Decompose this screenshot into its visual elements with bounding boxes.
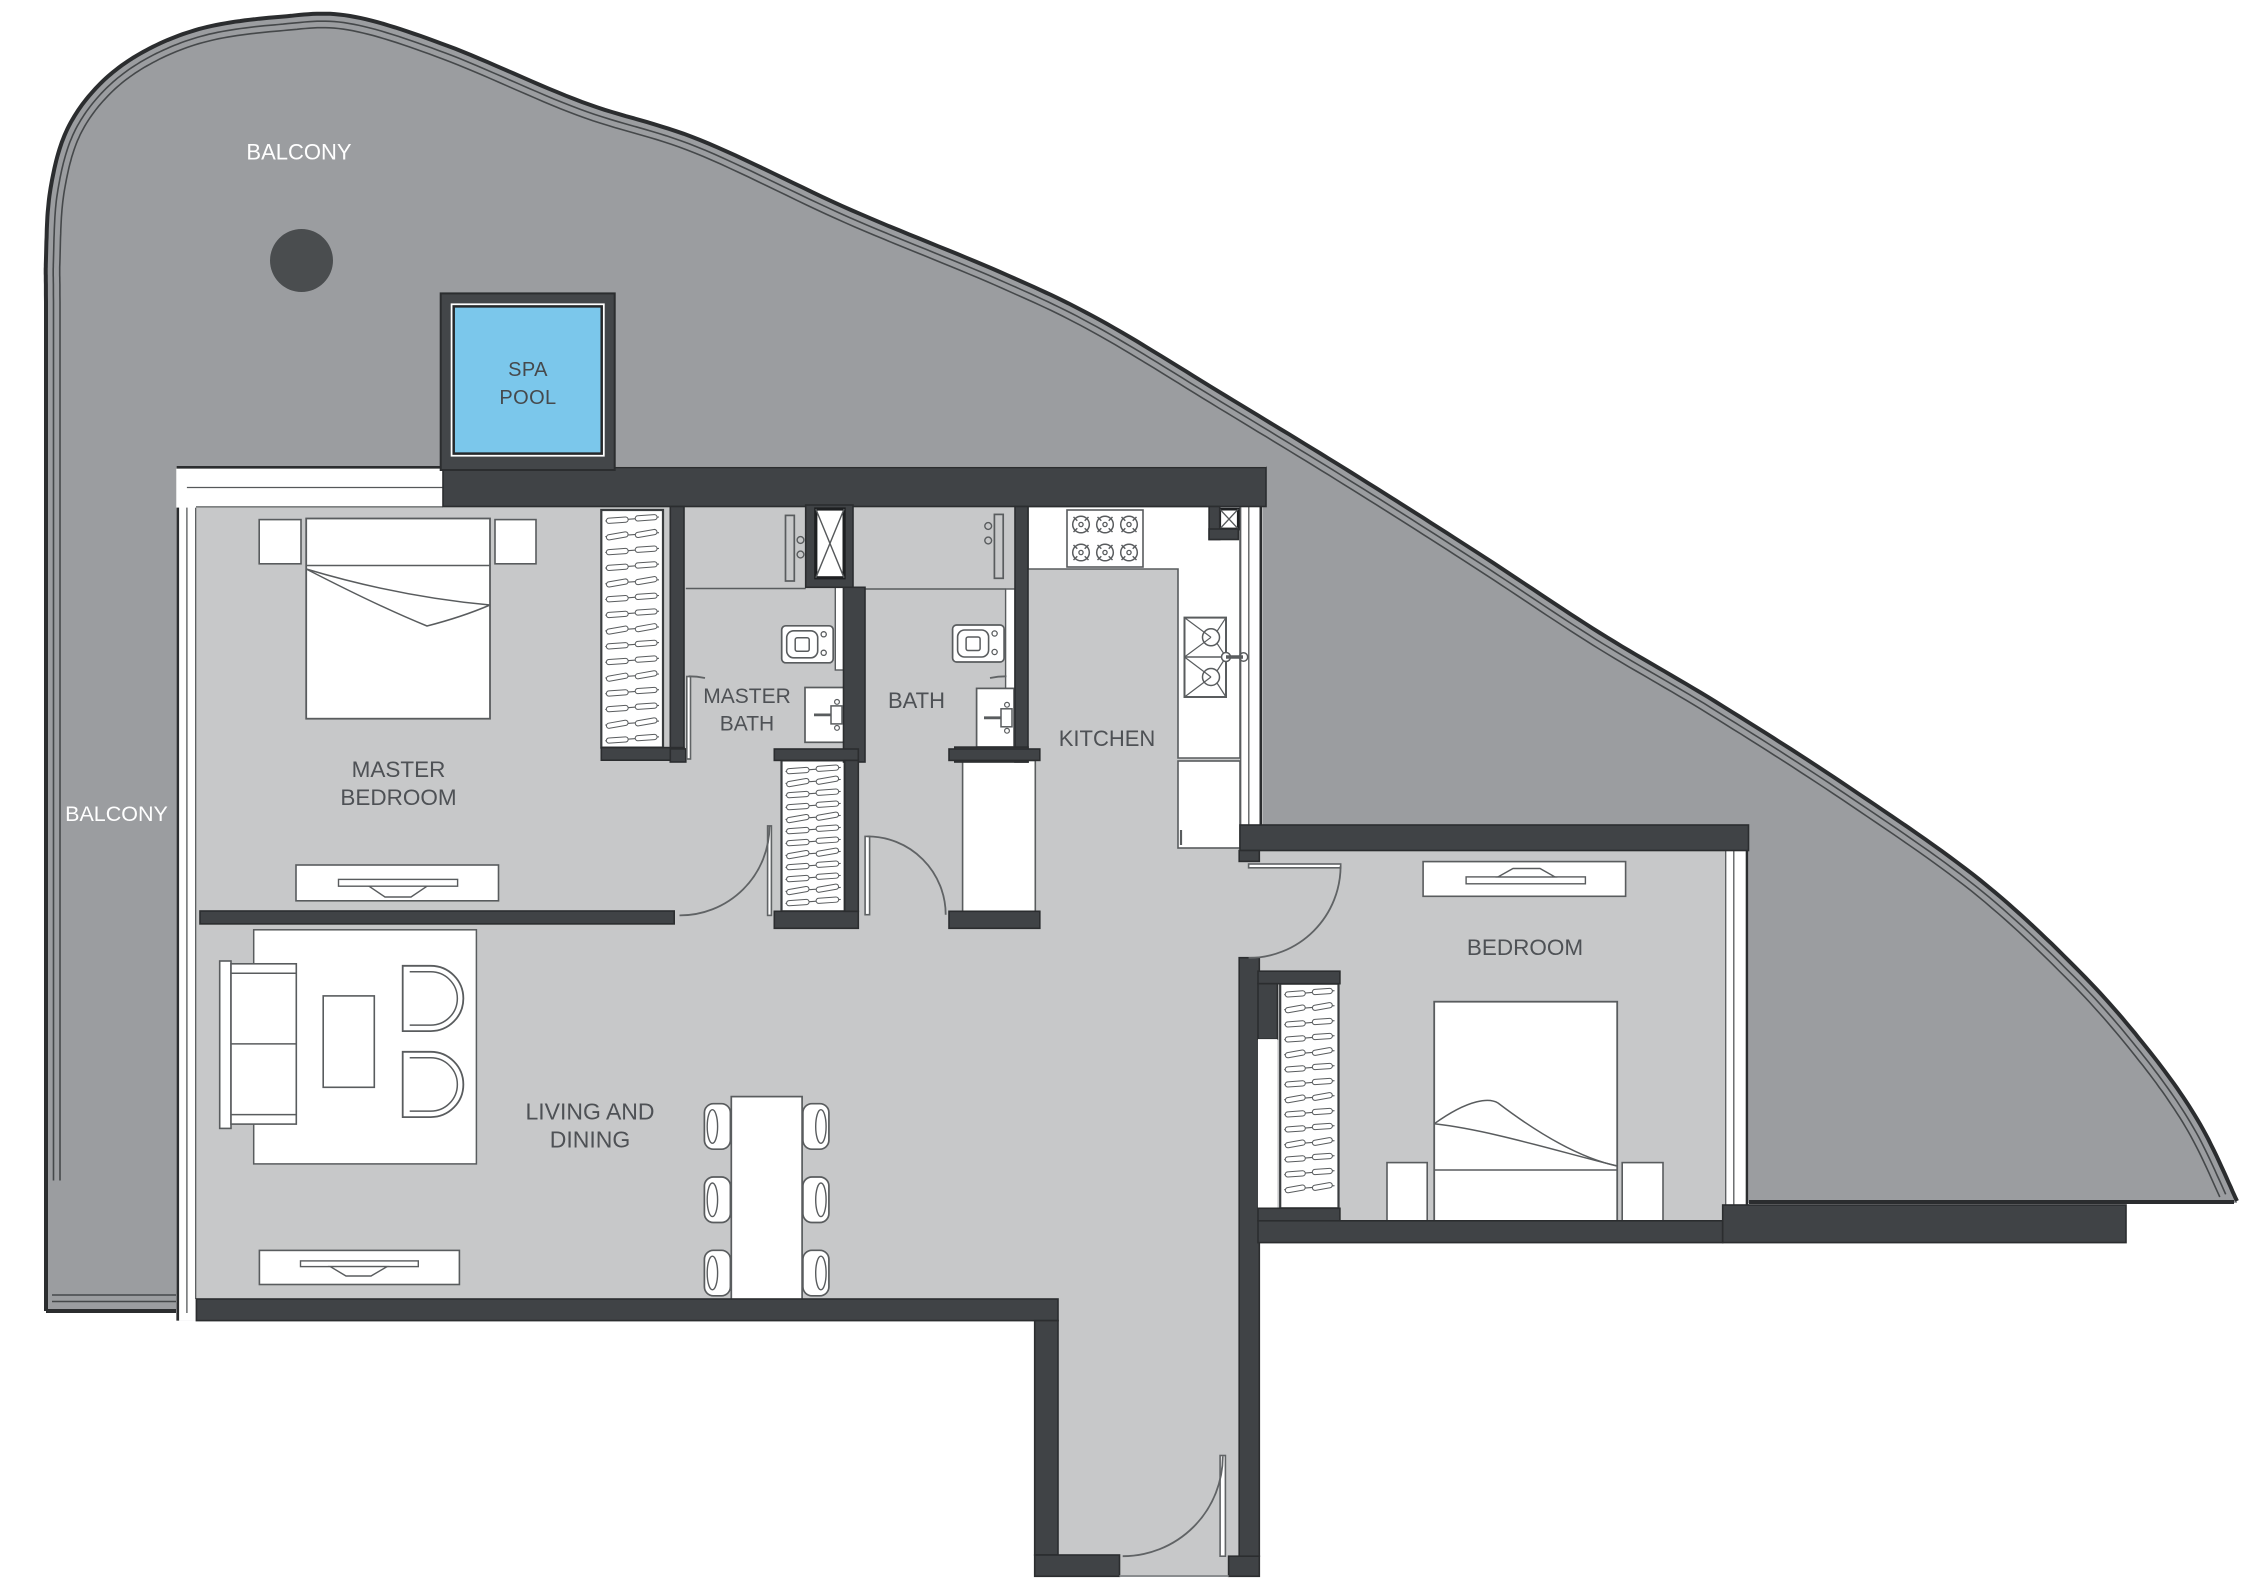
svg-text:BEDROOM: BEDROOM xyxy=(1467,935,1583,960)
svg-text:POOL: POOL xyxy=(499,387,556,409)
svg-text:BEDROOM: BEDROOM xyxy=(340,785,456,810)
svg-text:DINING: DINING xyxy=(550,1127,631,1153)
svg-text:SPA: SPA xyxy=(508,359,548,381)
svg-text:LIVING AND: LIVING AND xyxy=(525,1099,654,1125)
svg-text:KITCHEN: KITCHEN xyxy=(1059,726,1156,751)
svg-text:BATH: BATH xyxy=(720,713,774,736)
svg-text:BATH: BATH xyxy=(888,688,945,713)
svg-text:MASTER: MASTER xyxy=(352,757,446,782)
svg-text:BALCONY: BALCONY xyxy=(246,140,351,165)
svg-text:MASTER: MASTER xyxy=(703,685,791,708)
svg-text:BALCONY: BALCONY xyxy=(65,802,168,826)
